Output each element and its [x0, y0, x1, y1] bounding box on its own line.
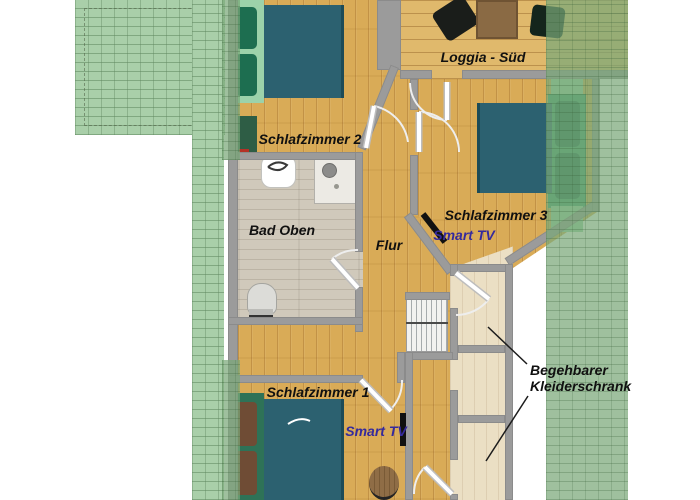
label-walkin-closet: Begehbarer Kleiderschrank — [530, 362, 631, 394]
label-walkin-closet-line1: Begehbarer — [530, 362, 631, 378]
label-bedroom1-smart-tv: Smart TV — [345, 423, 406, 439]
door-arc-closet-top — [456, 299, 489, 315]
washbasin-tap-icon — [268, 162, 287, 170]
door-arc-bedroom1 — [392, 380, 402, 408]
roof-overlay-right — [546, 0, 628, 500]
door-arc-bedroom2 — [374, 106, 408, 142]
door-arc-bedroom3 — [419, 112, 459, 152]
closet-pointer-line-bottom — [486, 396, 528, 461]
roof-overlay-left-bottom — [222, 360, 240, 500]
floor-plan: Schlafzimmer 2 Loggia - Süd Schlafzimmer… — [0, 0, 700, 500]
label-walkin-closet-line2: Kleiderschrank — [530, 378, 631, 394]
door-closet-top — [456, 273, 489, 299]
label-bedroom3: Schlafzimmer 3 — [445, 207, 548, 223]
label-bathroom: Bad Oben — [249, 222, 315, 238]
closet-pointer-line-top — [488, 327, 527, 364]
label-hallway: Flur — [376, 237, 402, 253]
door-corridor — [425, 467, 452, 494]
label-loggia: Loggia - Süd — [441, 49, 526, 65]
bedroom1-bed-detail — [288, 419, 310, 424]
label-bedroom2: Schlafzimmer 2 — [259, 131, 362, 147]
door-bathroom — [332, 259, 358, 288]
label-bedroom1: Schlafzimmer 1 — [267, 384, 370, 400]
door-arc-corridor — [414, 467, 425, 494]
label-bedroom3-smart-tv: Smart TV — [433, 227, 494, 243]
roof-overlay-left-top — [222, 0, 240, 160]
door-arc-bathroom — [332, 250, 358, 259]
